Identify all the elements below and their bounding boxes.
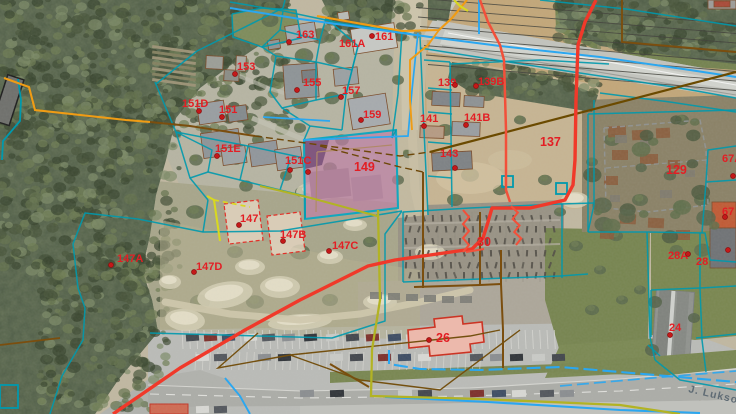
svg-text:151E: 151E	[215, 143, 241, 155]
svg-text:151D: 151D	[182, 98, 208, 110]
svg-text:30: 30	[477, 235, 491, 249]
svg-text:67A: 67A	[722, 153, 736, 165]
svg-text:139B: 139B	[478, 76, 504, 88]
svg-text:149: 149	[354, 160, 375, 174]
svg-text:147: 147	[240, 213, 258, 225]
svg-text:153: 153	[237, 61, 255, 73]
svg-text:155: 155	[303, 77, 321, 89]
svg-text:151C: 151C	[285, 155, 311, 167]
svg-text:24: 24	[669, 322, 682, 334]
svg-text:147C: 147C	[332, 240, 358, 252]
svg-text:161A: 161A	[339, 38, 365, 50]
svg-text:137: 137	[540, 135, 561, 149]
svg-text:143: 143	[440, 148, 458, 160]
svg-text:161: 161	[375, 31, 393, 43]
svg-text:141B: 141B	[464, 112, 490, 124]
svg-text:147D: 147D	[196, 261, 222, 273]
svg-text:147A: 147A	[117, 253, 143, 265]
svg-text:157: 157	[342, 85, 360, 97]
svg-text:141: 141	[420, 113, 438, 125]
svg-text:26: 26	[436, 331, 450, 345]
svg-text:129: 129	[666, 163, 687, 177]
svg-text:28A: 28A	[668, 250, 688, 262]
svg-text:28: 28	[696, 256, 708, 268]
svg-text:163: 163	[296, 29, 314, 41]
svg-text:159: 159	[363, 109, 381, 121]
